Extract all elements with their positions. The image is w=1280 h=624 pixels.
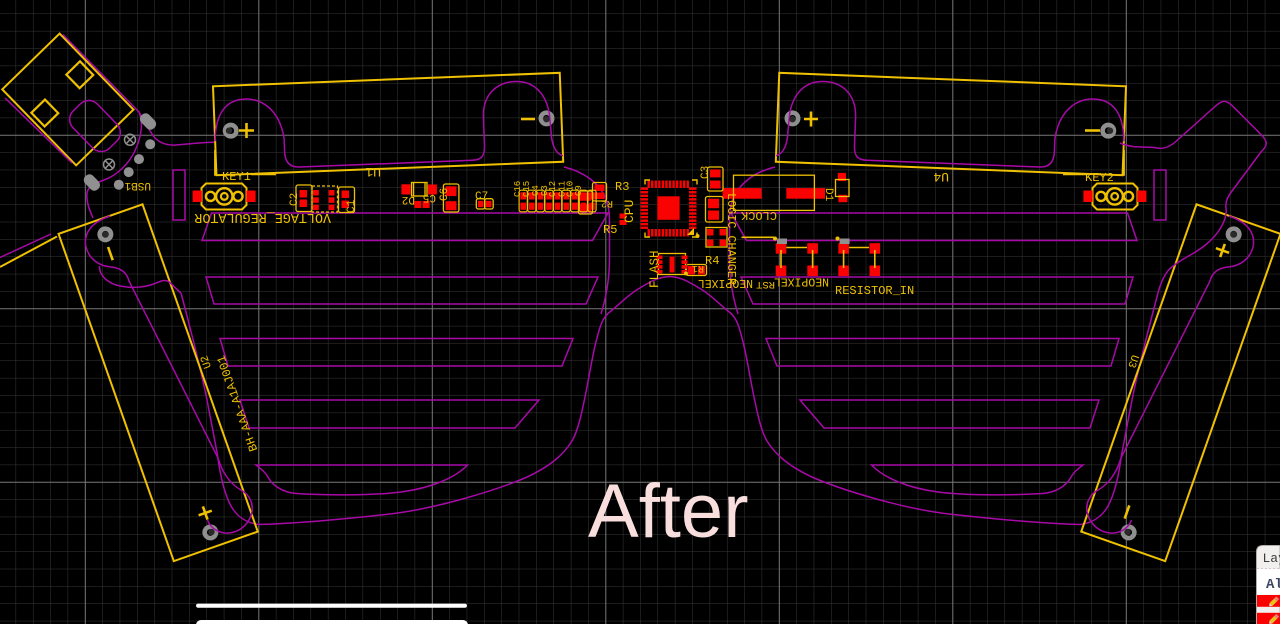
- svg-text:C5: C5: [423, 191, 436, 203]
- svg-text:VOLTAGE_REGULATOR: VOLTAGE_REGULATOR: [194, 209, 331, 224]
- svg-text:FLASH: FLASH: [648, 250, 662, 288]
- svg-text:D2: D2: [402, 193, 415, 205]
- svg-text:R5: R5: [603, 223, 617, 237]
- svg-text:CPU: CPU: [622, 200, 637, 223]
- svg-text:RESISTOR_IN: RESISTOR_IN: [835, 284, 914, 298]
- svg-text:R2: R2: [601, 197, 613, 208]
- svg-text:U4: U4: [933, 169, 949, 184]
- svg-text:C3: C3: [700, 166, 712, 179]
- svg-text:RST: RST: [756, 278, 775, 290]
- svg-text:LOGIC CHANGER: LOGIC CHANGER: [724, 193, 738, 285]
- svg-text:U1: U1: [365, 164, 381, 179]
- svg-text:R1: R1: [692, 262, 704, 273]
- svg-text:After: After: [588, 469, 749, 554]
- svg-text:R4: R4: [705, 254, 719, 268]
- svg-text:All: All: [1266, 577, 1280, 593]
- svg-text:USB1: USB1: [124, 179, 151, 191]
- svg-text:C2: C2: [289, 193, 301, 206]
- svg-text:D1: D1: [822, 188, 834, 202]
- svg-text:NEOPIXEL: NEOPIXEL: [698, 276, 753, 289]
- svg-text:C7: C7: [475, 191, 488, 203]
- svg-text:C9: C9: [574, 185, 584, 196]
- svg-text:R3: R3: [615, 180, 629, 194]
- svg-text:C6: C6: [439, 188, 451, 201]
- svg-text:Lay: Lay: [1263, 551, 1280, 566]
- svg-text:CLOCK: CLOCK: [740, 208, 777, 222]
- svg-text:KEY2: KEY2: [1085, 171, 1114, 185]
- svg-text:KEY1: KEY1: [222, 170, 251, 184]
- svg-text:NEOPIXEL: NEOPIXEL: [774, 275, 829, 288]
- svg-text:C1: C1: [346, 199, 358, 213]
